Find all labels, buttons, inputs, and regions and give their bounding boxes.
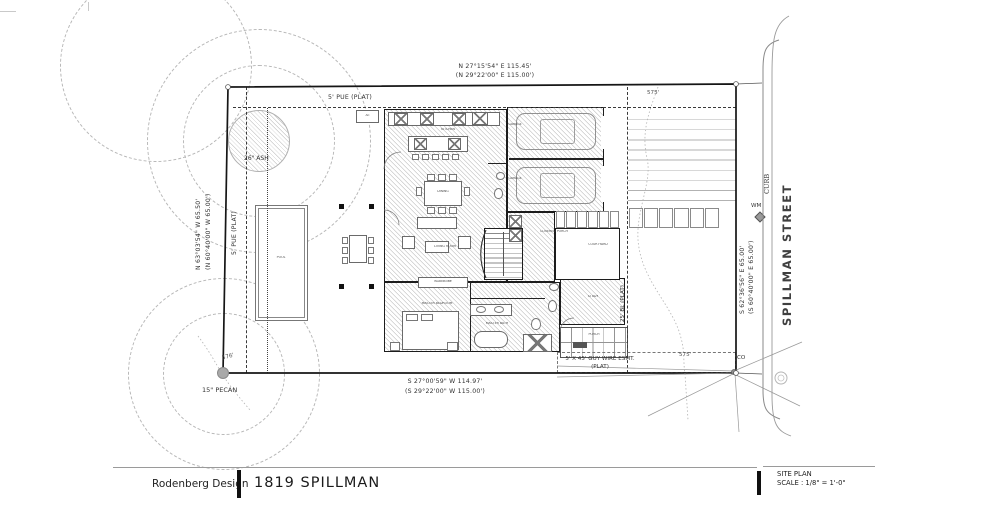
pue-west-label: 5' PUE (PLAT) bbox=[231, 185, 238, 255]
project-title: 1819 SPILLMAN bbox=[254, 475, 380, 491]
entry-porch-label: PORCH bbox=[578, 333, 610, 337]
contour-line bbox=[638, 87, 688, 420]
covered-porch-label: COVERED PORCH bbox=[539, 230, 569, 234]
west-bearing: N 63°03'54" W 65.50' bbox=[195, 178, 202, 270]
manhole-icon bbox=[775, 372, 787, 384]
cleanout-label: CO bbox=[737, 355, 745, 361]
water-meter-label: WM bbox=[751, 203, 761, 209]
property-boundary bbox=[223, 84, 736, 373]
street-name: SPILLMAN STREET bbox=[780, 181, 794, 326]
door-swing bbox=[384, 210, 399, 225]
garage-label: GARAGE bbox=[505, 177, 525, 181]
door-swing bbox=[560, 318, 574, 332]
building-line-label: 25' BL (PLAT) bbox=[620, 262, 626, 322]
pecan-label: 15" PECAN bbox=[202, 386, 237, 394]
tie-line bbox=[736, 373, 762, 374]
pue-north-label: 5' PUE (PLAT) bbox=[315, 94, 385, 101]
south-bearing-plat: (S 29°22'00" W 115.00') bbox=[380, 388, 510, 395]
guy-wire-label-2: (PLAT) bbox=[562, 364, 638, 370]
master-bath-label: MASTER BATH bbox=[474, 322, 520, 326]
curb-line bbox=[763, 40, 780, 419]
study-label: STUDY bbox=[575, 295, 611, 299]
corner-pin-icon bbox=[226, 85, 231, 90]
stair-curve-wall bbox=[481, 230, 486, 278]
contour-label: 575' bbox=[647, 90, 659, 96]
contour-label: 575' bbox=[679, 352, 691, 358]
guy-wire bbox=[735, 374, 739, 432]
guy-wire bbox=[734, 374, 800, 406]
living-label: LIVING ROOM bbox=[424, 245, 466, 249]
ash-label: 26" ASH bbox=[244, 155, 269, 162]
title-block-rule bbox=[113, 467, 757, 468]
north-bearing-plat: (N 29°22'00" E 115.00') bbox=[430, 72, 560, 79]
guy-wire bbox=[648, 374, 733, 416]
courtyard-label: COURTYARD bbox=[577, 243, 619, 247]
south-bearing: S 27°00'59" W 114.97' bbox=[380, 378, 510, 385]
title-block-rule-right bbox=[763, 466, 875, 467]
site-plan-sheet: WARDROBE AC bbox=[0, 0, 1000, 525]
guy-wire-label: 5' X 45' GUY WIRE ESMT. bbox=[562, 356, 638, 362]
firm-name: Rodenberg Design bbox=[152, 478, 249, 490]
sheet-title: SITE PLAN bbox=[777, 470, 812, 478]
kitchen-label: KITCHEN bbox=[430, 128, 466, 132]
title-divider-bar-right bbox=[757, 471, 761, 495]
title-divider-bar bbox=[237, 470, 241, 498]
manhole-icon-inner bbox=[778, 375, 784, 381]
west-bearing-plat: (N 60°40'00" W 65.00') bbox=[205, 178, 212, 270]
curb-label: CURB bbox=[763, 160, 771, 194]
sheet-scale: SCALE : 1/8" = 1'-0" bbox=[777, 479, 846, 487]
dining-label: DINING bbox=[428, 190, 458, 194]
master-bedroom-label: MASTER BEDROOM bbox=[405, 302, 469, 306]
corner-pin-icon bbox=[734, 371, 739, 376]
east-bearing-plat: (S 60°40'00" E 65.00') bbox=[748, 222, 755, 314]
east-bearing: S 62°36'56" E 65.00' bbox=[739, 222, 746, 314]
pecan-trunk bbox=[218, 368, 229, 379]
north-bearing: N 27°15'54" E 115.45' bbox=[430, 63, 560, 70]
garage-label: GARAGE bbox=[505, 123, 525, 127]
tie-line bbox=[736, 83, 762, 84]
corner-pin-icon bbox=[734, 82, 739, 87]
pool-label: POOL bbox=[265, 256, 297, 260]
door-swing bbox=[384, 152, 401, 169]
